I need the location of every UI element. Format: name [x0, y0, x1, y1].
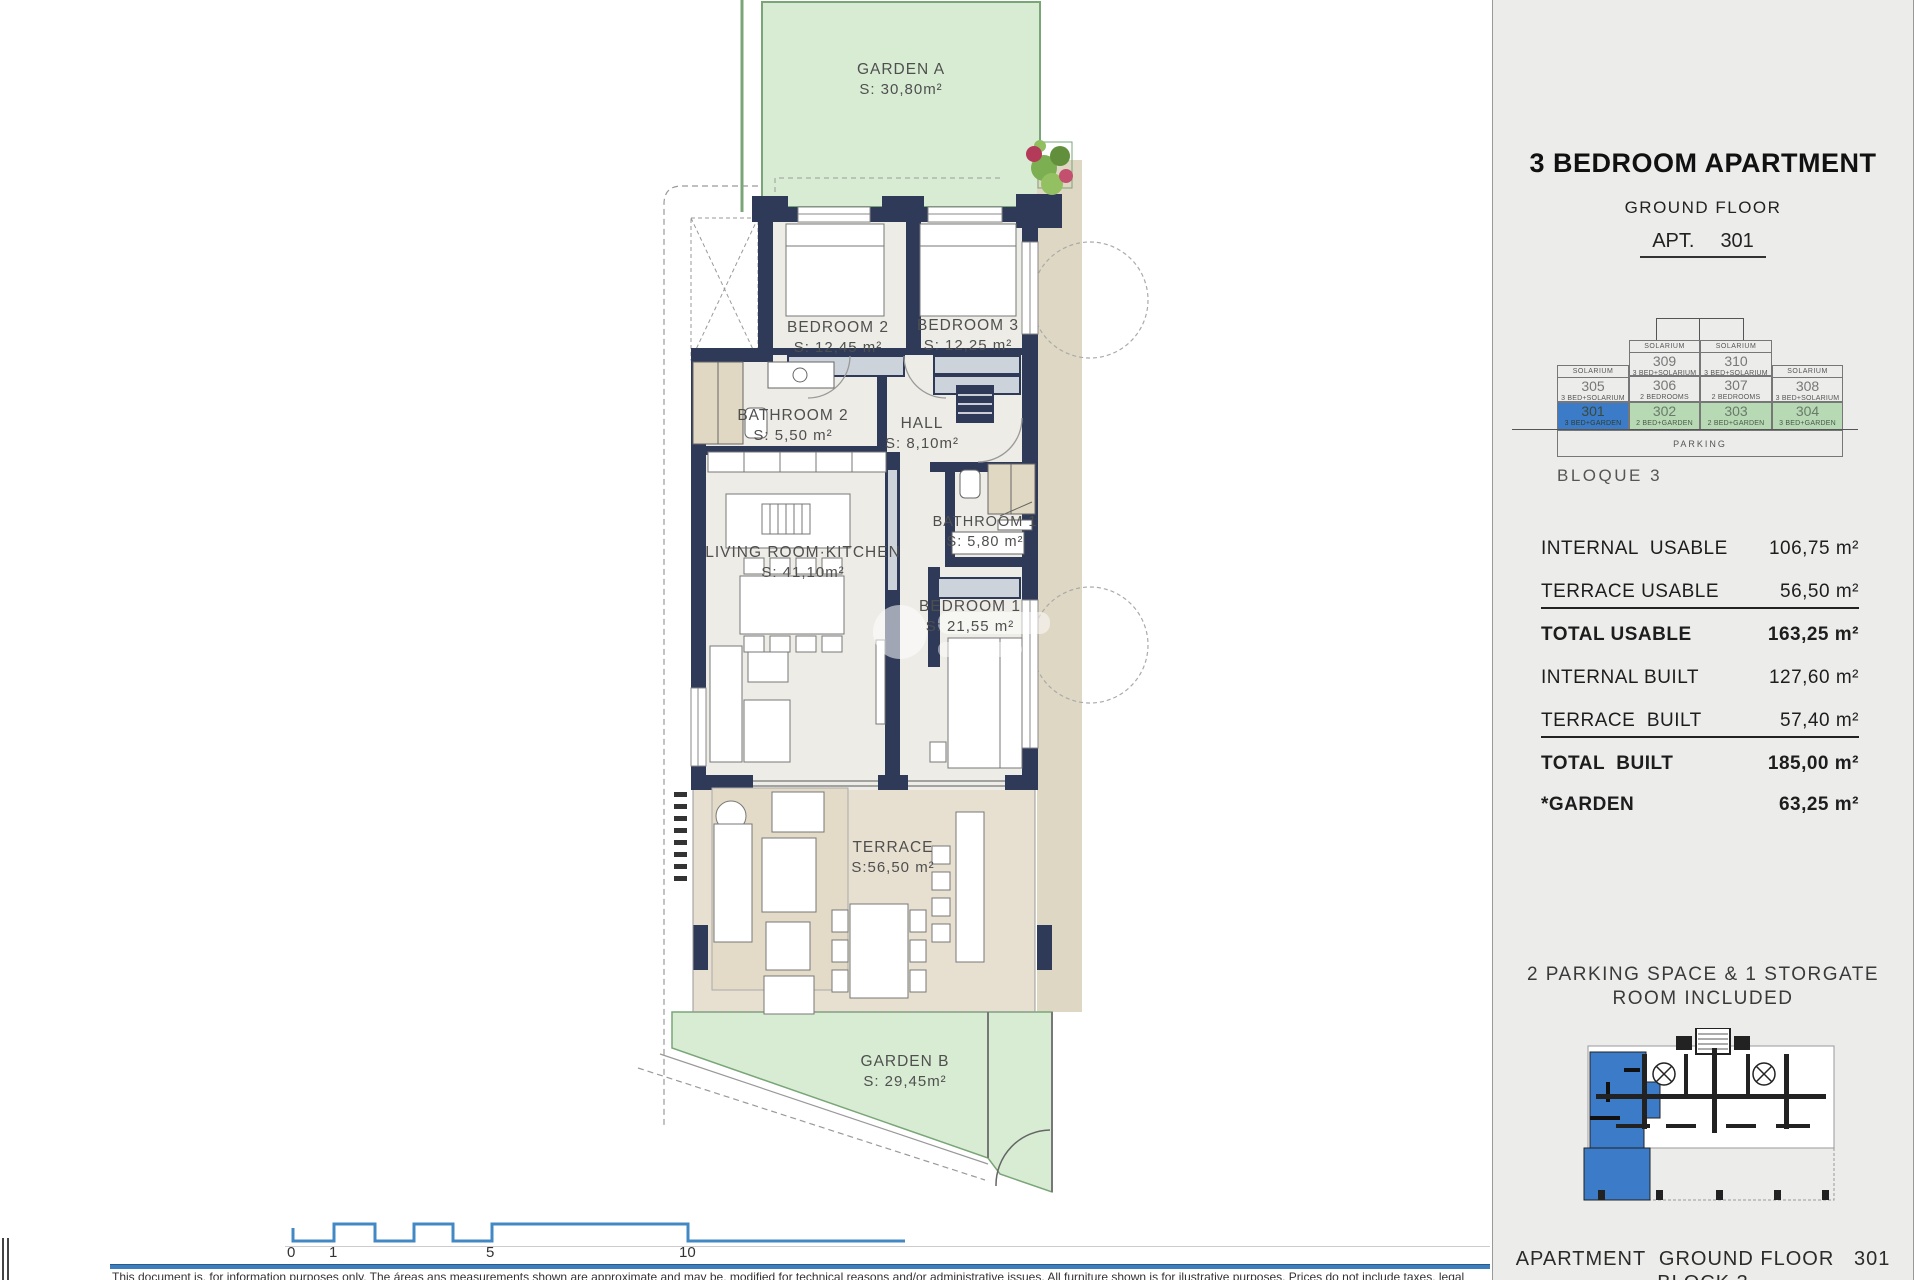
measure-total-built: TOTAL BUILT 185,00 m² [1541, 753, 1859, 779]
measure-internal-built: INTERNAL BUILT 127,60 m² [1541, 667, 1859, 693]
panel-apt: APT.301 [1493, 230, 1913, 258]
panel-footer-line1: APARTMENT GROUND FLOOR 301 [1493, 1248, 1913, 1271]
sheet-divider-line [285, 1246, 1490, 1247]
building-footprint-diagram [1576, 1028, 1846, 1208]
stack-cell-303: 303 2 BED+GARDEN [1700, 402, 1772, 430]
floor-plan-drawing [0, 0, 1490, 1280]
stack-cell-308: SOLARIUM 308 3 BED+SOLARIUM [1772, 365, 1843, 402]
footer-blue-line [110, 1264, 1490, 1269]
stack-cell-309: SOLARIUM 309 3 BED+SOLARIUM [1629, 340, 1700, 376]
void-hatch [691, 218, 758, 360]
stack-cell-305: SOLARIUM 305 3 BED+SOLARIUM [1557, 365, 1629, 402]
apt-number: 301 [1720, 230, 1753, 252]
bedroom1-label: BEDROOM 1 S: 21,55 m² [890, 597, 1050, 637]
stack-cell-304: 304 3 BED+GARDEN [1772, 402, 1843, 430]
sheet-left-border-inner [7, 1238, 9, 1280]
stack-cell-306: 306 2 BEDROOMS [1629, 376, 1700, 402]
floor-plan-sheet: GARDEN A S: 30,80m² BEDROOM 2 S: 12,45 m… [0, 0, 1920, 1280]
bedroom2-label: BEDROOM 2 S: 12,45 m² [763, 318, 913, 358]
living-room-label: LIVING ROOM·KITCHEN S: 41,10m² [683, 543, 923, 583]
apt-label: APT. [1652, 230, 1694, 252]
bathroom2-label: BATHROOM 2 S: 5,50 m² [703, 406, 883, 446]
panel-title: 3 BEDROOM APARTMENT [1493, 148, 1913, 179]
garden-a-label: GARDEN A S: 30,80m² [801, 60, 1001, 100]
stack-bracket-divider [1699, 318, 1700, 340]
stack-cell-307: 307 2 BEDROOMS [1700, 376, 1772, 402]
measure-garden: *GARDEN 63,25 m² [1541, 794, 1859, 820]
garden-b-area [672, 1012, 1052, 1192]
stack-parking: PARKING [1557, 430, 1843, 457]
measure-total-usable: TOTAL USABLE 163,25 m² [1541, 624, 1859, 650]
garden-b-label: GARDEN B S: 29,45m² [805, 1052, 1005, 1092]
louver-marks [674, 792, 687, 881]
terrace-label: TERRACE S:56,50 m² [803, 838, 983, 878]
bathroom1-label: BATHROOM 1 S: 5,80 m² [925, 512, 1045, 552]
side-walkway [1037, 160, 1082, 1012]
parking-note-line1: 2 PARKING SPACE & 1 STORGATE [1493, 964, 1913, 986]
sheet-left-border [2, 1238, 4, 1280]
panel-footer-line2: BLOCK 3 [1493, 1272, 1913, 1280]
measure-internal-usable: INTERNAL USABLE 106,75 m² [1541, 538, 1859, 564]
parking-note-line2: ROOM INCLUDED [1493, 988, 1913, 1010]
panel-floor: GROUND FLOOR [1493, 198, 1913, 218]
scale-bar [293, 1224, 905, 1241]
garden-a-area [742, 0, 1040, 212]
stack-cell-302: 302 2 BED+GARDEN [1629, 402, 1700, 430]
stack-cell-301-highlight: 301 3 BED+GARDEN [1557, 402, 1629, 430]
hall-label: HALL S: 8,10m² [862, 414, 982, 454]
info-panel: 3 BEDROOM APARTMENT GROUND FLOOR APT.301… [1492, 0, 1914, 1280]
measure-terrace-built: TERRACE BUILT 57,40 m² [1541, 710, 1859, 738]
disclaimer-text: This document is, for information purpos… [112, 1270, 1490, 1280]
bedroom3-label: BEDROOM 3 S: 12,25 m² [893, 316, 1043, 356]
stack-cell-310: SOLARIUM 310 3 BED+SOLARIUM [1700, 340, 1772, 376]
stack-caption: BLOQUE 3 [1557, 466, 1662, 486]
stack-bracket [1656, 318, 1744, 341]
measure-terrace-usable: TERRACE USABLE 56,50 m² [1541, 581, 1859, 609]
